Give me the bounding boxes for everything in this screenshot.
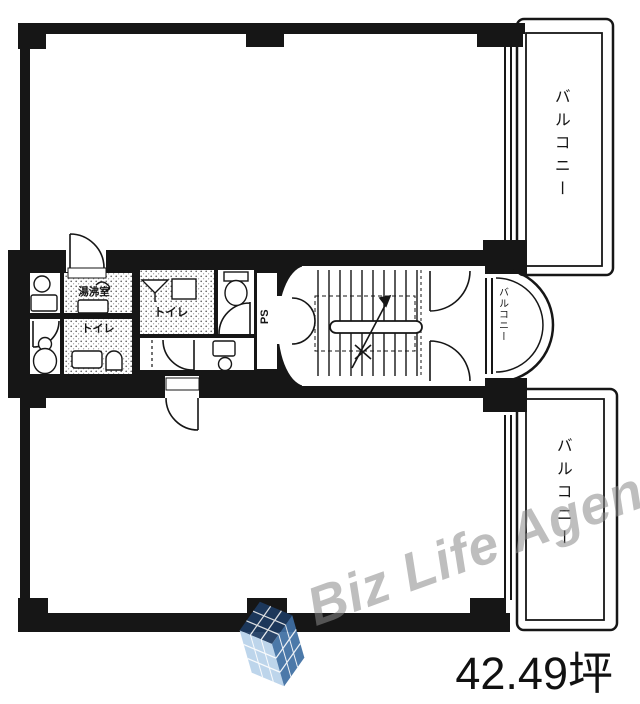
toilet-left-fixtures	[72, 351, 122, 370]
wc-toilet	[224, 272, 248, 306]
logo-cube	[234, 594, 311, 694]
floor-plan: 湯沸室 トイレ トイレ PS バルコニー バルコニー バルコニー Biz Lif…	[0, 0, 640, 704]
toilet-left-label: トイレ	[70, 324, 126, 336]
pipe-space-label: PS	[260, 303, 272, 331]
balcony-top-label: バルコニー	[551, 88, 568, 258]
toilet-right-label: トイレ	[145, 307, 197, 319]
balcony-middle-label: バルコニー	[496, 287, 507, 373]
kitchenette-label: 湯沸室	[66, 287, 122, 298]
floor-area-label: 42.49坪	[388, 650, 613, 697]
